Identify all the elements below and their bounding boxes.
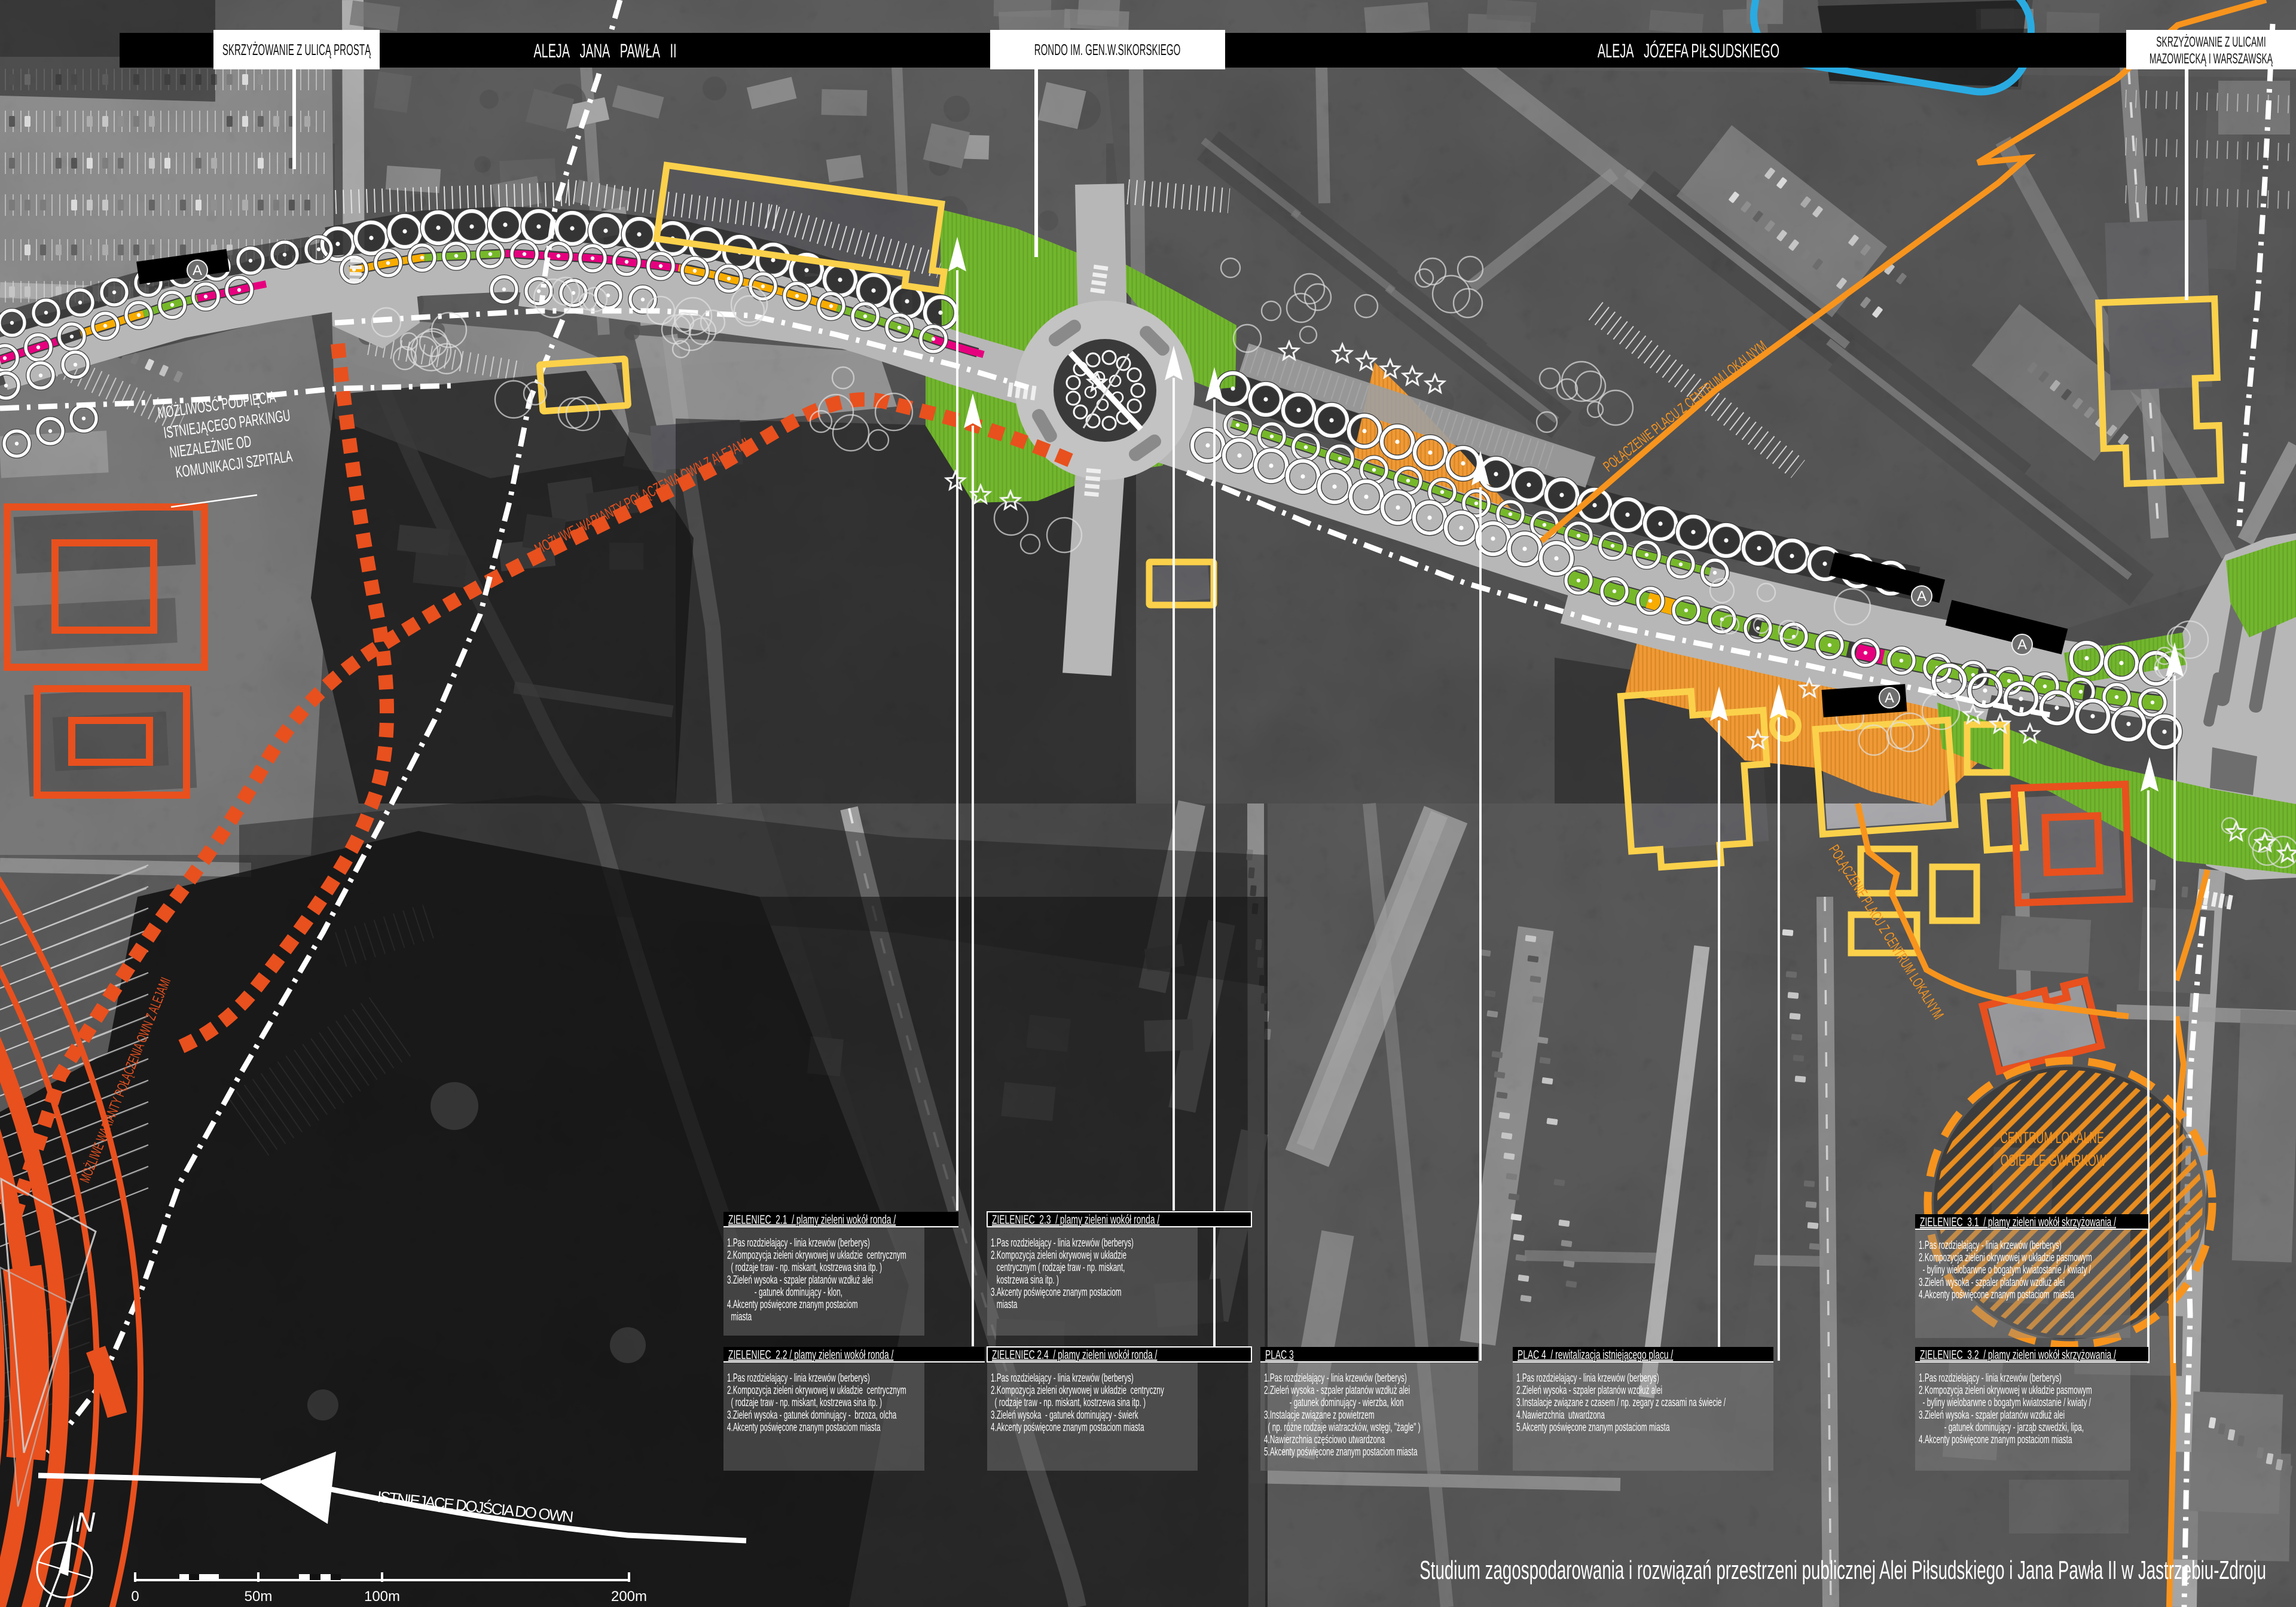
svg-text:2.Kompozycja zieleni okrywowej: 2.Kompozycja zieleni okrywowej w układzi… bbox=[1919, 1385, 2092, 1397]
svg-text:A: A bbox=[1917, 588, 1926, 604]
svg-text:3.Instalacje związane z czasem: 3.Instalacje związane z czasem / np. zeg… bbox=[1516, 1397, 1726, 1409]
svg-text:200m: 200m bbox=[611, 1588, 647, 1605]
svg-text:2.Zieleń wysoka - szpaler plat: 2.Zieleń wysoka - szpaler platanów wzdłu… bbox=[1516, 1385, 1662, 1397]
svg-text:ZIELENIEC 3.2 / plamy zielen: ZIELENIEC 3.2 / plamy zieleni wokół skrz… bbox=[1920, 1348, 2116, 1362]
svg-text:N: N bbox=[75, 1507, 96, 1538]
svg-text:1.Pas rozdzielający - linia kr: 1.Pas rozdzielający - linia krzewów (ber… bbox=[1516, 1372, 1659, 1384]
svg-text:( rodzaje traw - np. miskant,: ( rodzaje traw - np. miskant, kostrzewa … bbox=[991, 1397, 1146, 1409]
svg-text:4.Akcenty poświęcone znanym po: 4.Akcenty poświęcone znanym postaciom mi… bbox=[1919, 1289, 2074, 1301]
svg-text:SKRZYŻOWANIE Z ULICAMI: SKRZYŻOWANIE Z ULICAMI bbox=[2156, 33, 2266, 50]
svg-text:2.Kompozycja zieleni okrywowej: 2.Kompozycja zieleni okrywowej w układzi… bbox=[1919, 1252, 2092, 1264]
svg-text:CENTRUM LOKALNE: CENTRUM LOKALNE bbox=[2000, 1128, 2104, 1147]
svg-text:- byliny wielobarwne o bogatym: - byliny wielobarwne o bogatym kwiatosta… bbox=[1919, 1264, 2091, 1276]
svg-text:A: A bbox=[193, 262, 202, 279]
svg-text:4.Akcenty poświęcone znanym po: 4.Akcenty poświęcone znanym postaciom mi… bbox=[727, 1422, 881, 1434]
svg-text:- gatunek dominujący - wierzba: - gatunek dominujący - wierzba, klon bbox=[1264, 1397, 1404, 1409]
svg-text:- gatunek dominujący - klon,: - gatunek dominujący - klon, bbox=[727, 1287, 842, 1299]
svg-text:PLAC 3: PLAC 3 bbox=[1265, 1348, 1294, 1362]
svg-text:ZIELENIEC 2.1 / plamy zielen: ZIELENIEC 2.1 / plamy zieleni wokół rond… bbox=[728, 1212, 896, 1227]
svg-text:5.Akcenty poświęcone znanym po: 5.Akcenty poświęcone znanym postaciom mi… bbox=[1516, 1422, 1670, 1434]
svg-text:- gatunek dominujący - jarząb: - gatunek dominujący - jarząb szwedzki, … bbox=[1919, 1422, 2084, 1434]
svg-text:2.Kompozycja zieleni okrywowej: 2.Kompozycja zieleni okrywowej w układzi… bbox=[727, 1385, 906, 1397]
svg-text:ALEJA JÓZEFA PIŁSUDSKIEGO: ALEJA JÓZEFA PIŁSUDSKIEGO bbox=[1598, 40, 1779, 62]
svg-text:4.Akcenty poświęcone znanym po: 4.Akcenty poświęcone znanym postaciom bbox=[727, 1299, 858, 1310]
svg-text:4.Nawierzchnia utwardzona: 4.Nawierzchnia utwardzona bbox=[1516, 1409, 1605, 1421]
svg-text:centrycznym ( rodzaje traw - n: centrycznym ( rodzaje traw - np. miskant… bbox=[991, 1262, 1125, 1274]
svg-text:A: A bbox=[2017, 637, 2027, 653]
svg-text:- byliny wielobarwne o bogatym: - byliny wielobarwne o bogatym kwiatosta… bbox=[1919, 1397, 2091, 1409]
svg-text:2.Zieleń wysoka - szpaler plat: 2.Zieleń wysoka - szpaler platanów wzdłu… bbox=[1264, 1385, 1410, 1397]
svg-text:4.Akcenty poświęcone znanym po: 4.Akcenty poświęcone znanym postaciom mi… bbox=[991, 1422, 1144, 1434]
svg-text:1.Pas rozdzielający - linia kr: 1.Pas rozdzielający - linia krzewów (ber… bbox=[727, 1237, 870, 1249]
svg-text:50m: 50m bbox=[245, 1588, 273, 1605]
svg-text:3.Zieleń wysoka - gatunek domi: 3.Zieleń wysoka - gatunek dominujący - b… bbox=[727, 1409, 896, 1421]
svg-text:MAZOWIECKĄ I WARSZAWSKĄ: MAZOWIECKĄ I WARSZAWSKĄ bbox=[2150, 51, 2273, 67]
svg-text:SKRZYŻOWANIE Z ULICĄ PROSTĄ: SKRZYŻOWANIE Z ULICĄ PROSTĄ bbox=[222, 41, 371, 59]
svg-text:3.Zieleń wysoka - gatunek dom: 3.Zieleń wysoka - gatunek dominujący - ś… bbox=[991, 1409, 1138, 1421]
svg-text:1.Pas rozdzielający - linia kr: 1.Pas rozdzielający - linia krzewów (ber… bbox=[1919, 1239, 2062, 1251]
svg-text:ZIELENIEC 3.1 / plamy zielen: ZIELENIEC 3.1 / plamy zieleni wokół skrz… bbox=[1920, 1215, 2116, 1229]
svg-text:( rodzaje traw - np. miskant,: ( rodzaje traw - np. miskant, kostrzewa … bbox=[727, 1397, 882, 1409]
svg-text:OSIEDLE GWARKÓW: OSIEDLE GWARKÓW bbox=[2001, 1151, 2106, 1169]
svg-text:Studium zagospodarowania i roz: Studium zagospodarowania i rozwiązań prz… bbox=[1419, 1556, 2266, 1585]
svg-text:RONDO IM. GEN.W.SIKORSKIEGO: RONDO IM. GEN.W.SIKORSKIEGO bbox=[1034, 41, 1181, 59]
svg-text:1.Pas rozdzielający - linia kr: 1.Pas rozdzielający - linia krzewów (ber… bbox=[727, 1372, 870, 1384]
svg-text:kostrzewa sina itp. ): kostrzewa sina itp. ) bbox=[991, 1274, 1059, 1286]
svg-text:5.Akcenty poświęcone znanym po: 5.Akcenty poświęcone znanym postaciom mi… bbox=[1264, 1446, 1418, 1458]
svg-text:3.Akcenty poświęcone znanym po: 3.Akcenty poświęcone znanym postaciom bbox=[991, 1287, 1122, 1299]
svg-text:PLAC 4 / rewitalizacja istnie: PLAC 4 / rewitalizacja istniejącego plac… bbox=[1518, 1348, 1673, 1362]
svg-text:2.Kompozycja zieleni okrywowej: 2.Kompozycja zieleni okrywowej w układzi… bbox=[991, 1385, 1164, 1397]
svg-text:( np. różne rodzaje wiatraczkó: ( np. różne rodzaje wiatraczków, wstęgi,… bbox=[1264, 1422, 1421, 1434]
svg-text:ZIELENIEC 2.3 / plamy zielen: ZIELENIEC 2.3 / plamy zieleni wokół rond… bbox=[992, 1212, 1159, 1227]
svg-text:1.Pas rozdzielający - linia kr: 1.Pas rozdzielający - linia krzewów (ber… bbox=[991, 1237, 1134, 1249]
svg-text:4.Nawierzchnia częściowo utwar: 4.Nawierzchnia częściowo utwardzona bbox=[1264, 1434, 1385, 1446]
svg-text:3.Instalacje związane z powiet: 3.Instalacje związane z powietrzem bbox=[1264, 1409, 1375, 1421]
svg-text:4.Akcenty poświęcone znanym po: 4.Akcenty poświęcone znanym postaciom mi… bbox=[1919, 1434, 2072, 1446]
svg-text:0: 0 bbox=[131, 1588, 139, 1605]
svg-text:( rodzaje traw - np. miskant,: ( rodzaje traw - np. miskant, kostrzewa … bbox=[727, 1262, 882, 1274]
svg-text:3.Zieleń wysoka - szpaler plat: 3.Zieleń wysoka - szpaler platanów wzdłu… bbox=[1919, 1276, 2065, 1288]
svg-text:1.Pas rozdzielający - linia kr: 1.Pas rozdzielający - linia krzewów (ber… bbox=[1264, 1372, 1407, 1384]
svg-text:miasta: miasta bbox=[991, 1299, 1018, 1310]
svg-text:ALEJA JANA PAWŁA II: ALEJA JANA PAWŁA II bbox=[533, 40, 676, 62]
svg-text:2.Kompozycja zieleni okrywowej: 2.Kompozycja zieleni okrywowej w układzi… bbox=[727, 1249, 906, 1261]
svg-text:1.Pas rozdzielający - linia kr: 1.Pas rozdzielający - linia krzewów (ber… bbox=[991, 1372, 1134, 1384]
svg-text:miasta: miasta bbox=[727, 1311, 752, 1323]
svg-text:A: A bbox=[1885, 690, 1894, 706]
svg-text:ZIELENIEC 2.4 / plamy zieleni: ZIELENIEC 2.4 / plamy zieleni wokół rond… bbox=[992, 1348, 1157, 1362]
svg-text:ZIELENIEC 2.2 / plamy zieleni: ZIELENIEC 2.2 / plamy zieleni wokół rond… bbox=[728, 1348, 893, 1362]
svg-text:3.Zieleń wysoka - szpaler plat: 3.Zieleń wysoka - szpaler platanów wzdłu… bbox=[1919, 1409, 2065, 1421]
svg-text:3.Zieleń wysoka - szpaler plat: 3.Zieleń wysoka - szpaler platanów wzdłu… bbox=[727, 1274, 873, 1286]
svg-text:1.Pas rozdzielający - linia kr: 1.Pas rozdzielający - linia krzewów (ber… bbox=[1919, 1372, 2062, 1384]
svg-text:2.Kompozycja zieleni okrywowej: 2.Kompozycja zieleni okrywowej w układzi… bbox=[991, 1249, 1126, 1261]
svg-text:100m: 100m bbox=[364, 1588, 400, 1605]
